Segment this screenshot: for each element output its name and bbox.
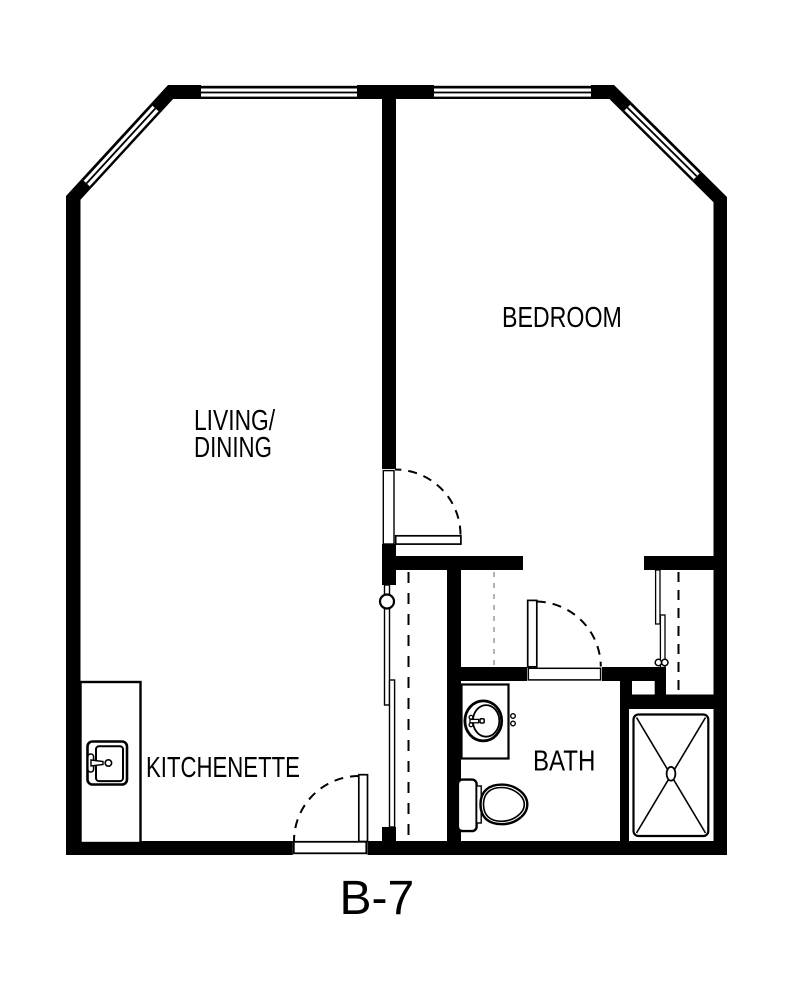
svg-text:BATH: BATH bbox=[533, 744, 595, 777]
svg-text:KITCHENETTE: KITCHENETTE bbox=[146, 752, 300, 783]
svg-text:DINING: DINING bbox=[194, 432, 272, 463]
svg-text:BEDROOM: BEDROOM bbox=[502, 300, 622, 333]
svg-text:B-7: B-7 bbox=[340, 872, 415, 925]
